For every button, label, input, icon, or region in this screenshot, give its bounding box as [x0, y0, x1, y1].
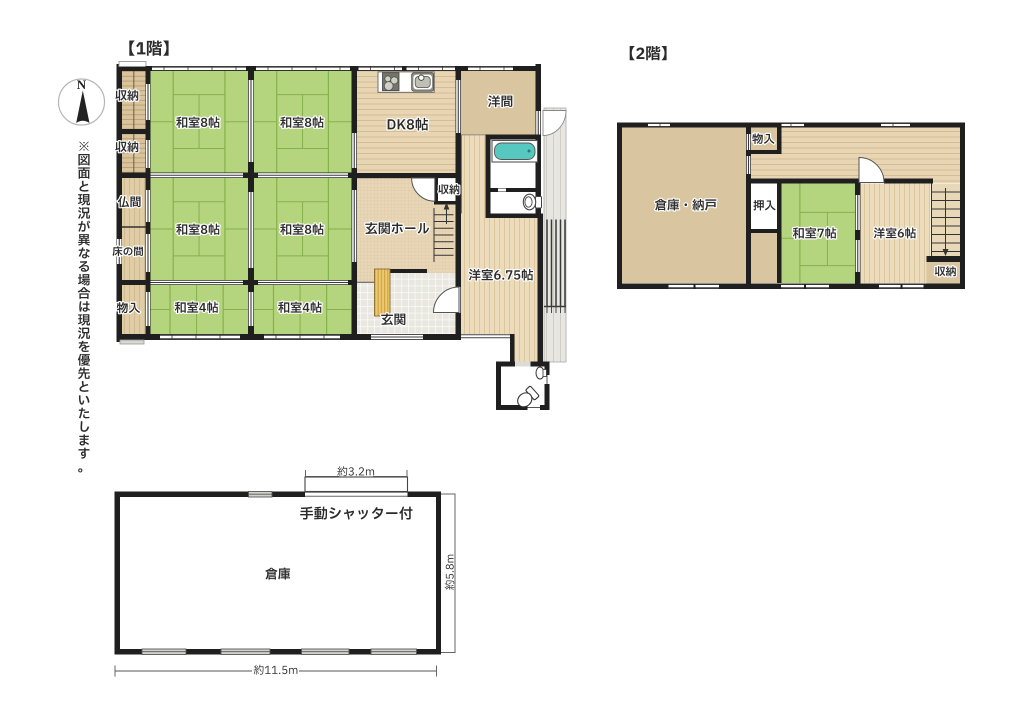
- svg-text:N: N: [77, 77, 87, 92]
